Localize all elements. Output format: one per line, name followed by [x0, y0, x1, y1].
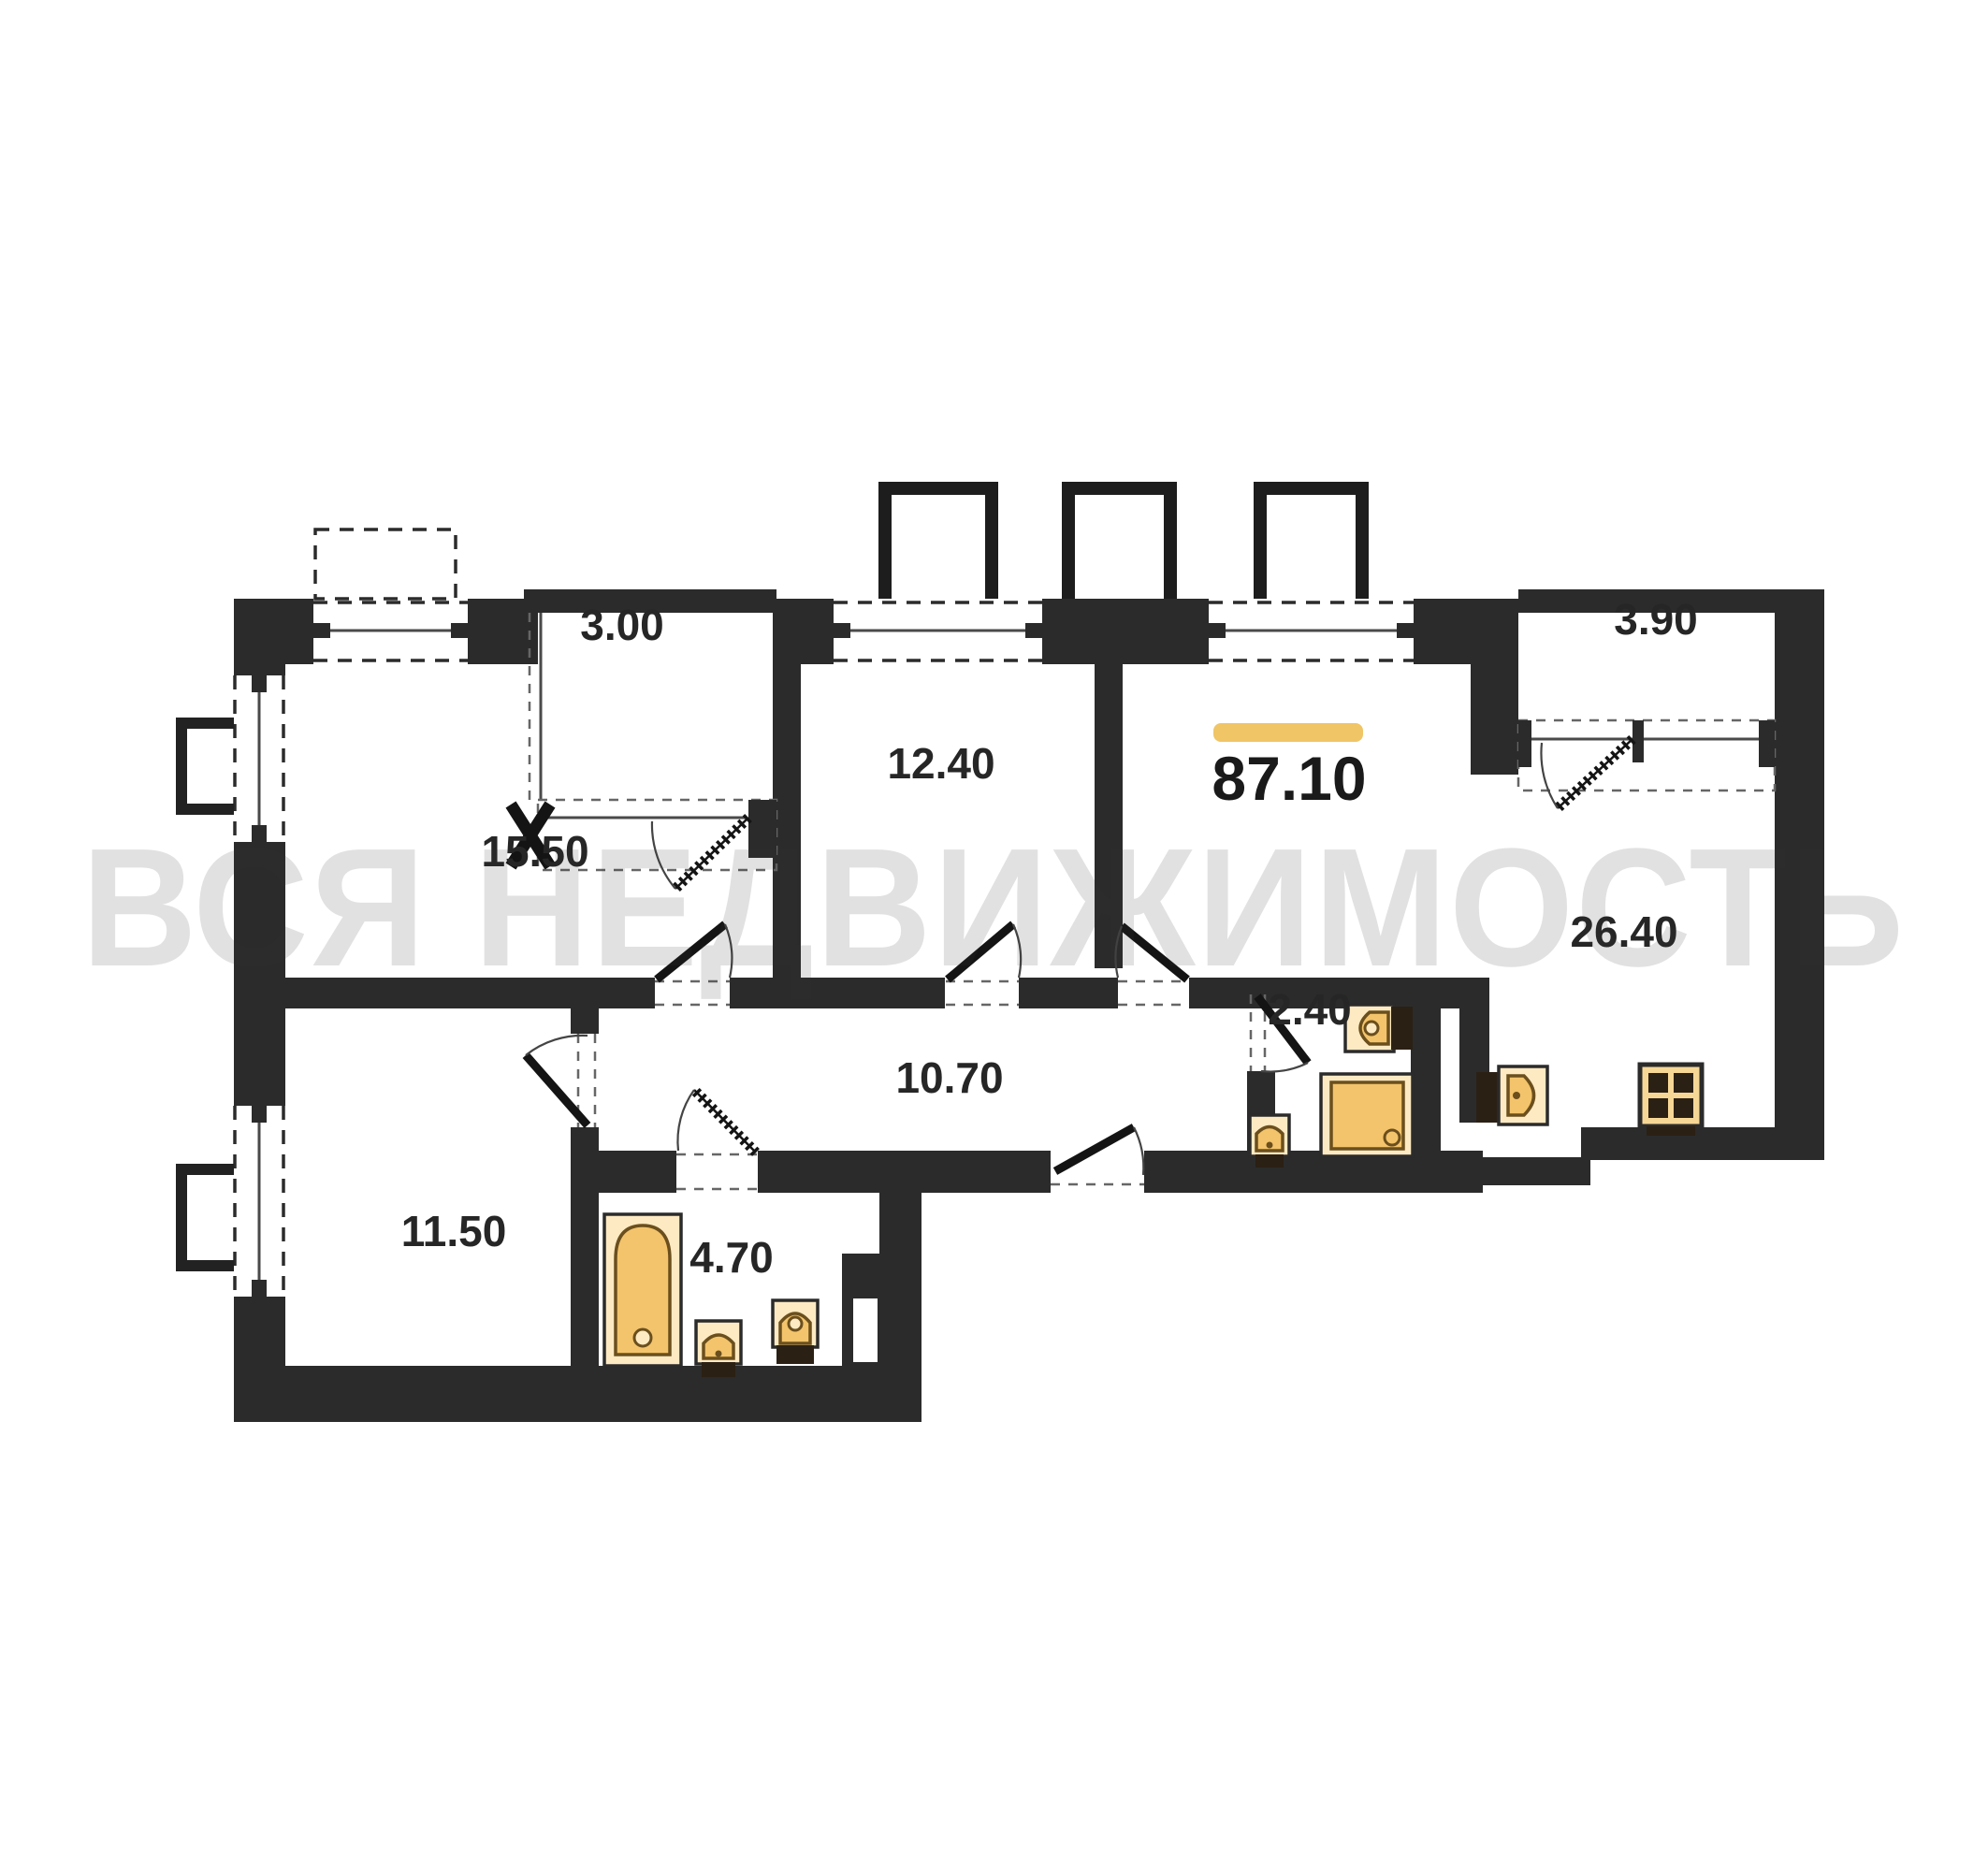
area-label-balcony-top-right: 3.90	[1614, 595, 1698, 644]
shower-icon	[1321, 1074, 1413, 1156]
balconette-lower-icon	[181, 1169, 234, 1266]
wc-toilet-icon	[1345, 1005, 1413, 1052]
balcony-door-icon	[1541, 739, 1632, 808]
total-area-label: 87.10	[1212, 744, 1366, 813]
entrance-door-icon	[1051, 1127, 1144, 1184]
bathroom-toilet-icon	[773, 1300, 818, 1364]
bathtub-icon	[604, 1214, 681, 1366]
door-room-1150-icon	[526, 1034, 595, 1127]
bathroom-sink-icon	[696, 1321, 741, 1377]
area-label-balcony-top-left: 3.00	[580, 601, 664, 649]
walls	[234, 589, 1824, 1422]
accent-bar	[1213, 723, 1363, 742]
watermark-text: ВСЯ НЕДВИЖИМОСТЬ	[81, 814, 1906, 1002]
window-room-1240-icon	[834, 599, 1042, 664]
window-left-lower-icon	[181, 1106, 287, 1297]
kitchen-sink-icon	[1476, 1066, 1547, 1124]
area-label-room-middle-top: 12.40	[887, 739, 994, 788]
area-label-room-bottom-left: 11.50	[401, 1207, 507, 1255]
floor-plan: 3.00 15.50 12.40 87.10 3.90 26.40 2.40 1…	[0, 0, 1988, 1871]
area-label-hallway: 10.70	[895, 1053, 1003, 1102]
door-bathroom-icon	[676, 1090, 758, 1189]
window-living-icon	[1209, 599, 1414, 664]
area-label-bathroom: 4.70	[689, 1233, 774, 1282]
top-protrusions	[885, 488, 1362, 606]
wc-sink-icon	[1250, 1115, 1289, 1168]
balcony-top-right	[1518, 720, 1775, 808]
balconette-upper-icon	[181, 723, 234, 809]
stove-icon	[1640, 1065, 1702, 1136]
window-top-left-icon	[313, 529, 468, 664]
